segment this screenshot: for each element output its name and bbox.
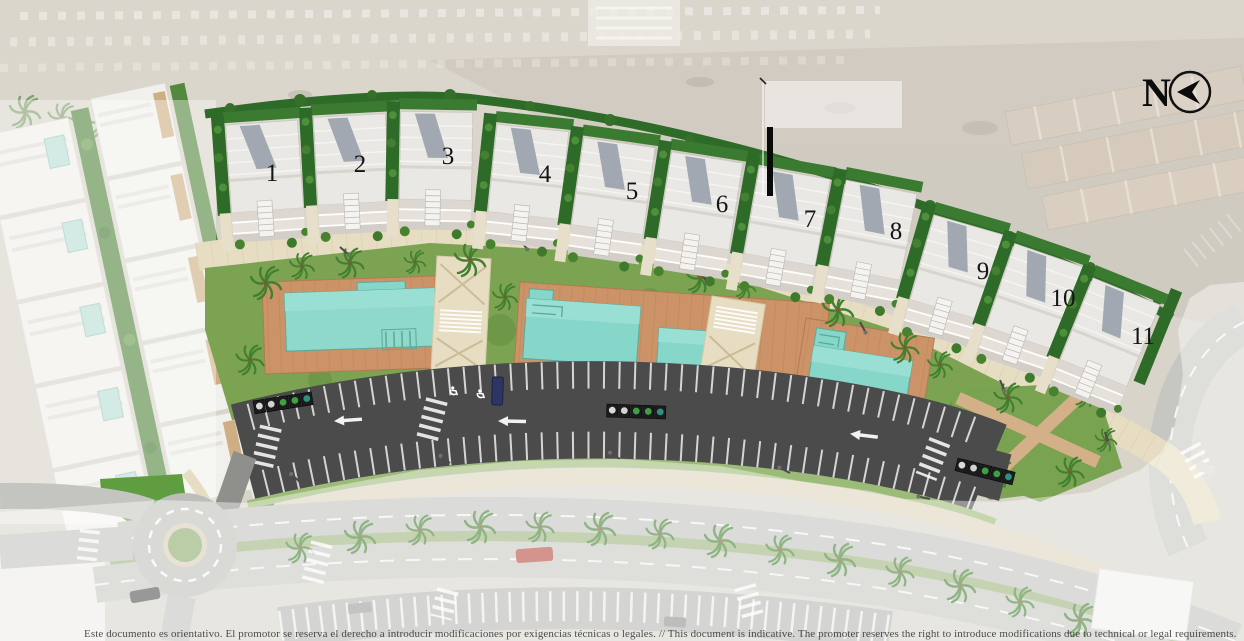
waste-containers [607,404,666,419]
disclaimer-text: Este documento es orientativo. El promot… [84,628,1234,639]
house-number-label: 7 [804,206,817,233]
house-number-label: 4 [539,161,552,188]
house-number-label: 6 [716,191,729,218]
house-number-label: 5 [626,178,639,205]
site-plan: 1 2 3 4 5 6 7 8 9 10 11 [0,0,1244,641]
house-plot [385,98,477,240]
site-plan-rendering: 1 2 3 4 5 6 7 8 9 10 11 [0,0,1244,641]
parked-car [492,377,504,405]
house-plot [299,100,396,245]
left-fade-overlay [0,100,216,524]
house-number-label: 8 [890,218,903,245]
north-label: N [1142,70,1171,115]
house-number-label: 10 [1051,285,1076,312]
house-plot [211,107,311,253]
stairs-path-1 [431,256,491,373]
house-number-label: 3 [442,143,455,170]
house-number-label: 1 [266,160,279,187]
house-number-label: 2 [354,151,367,178]
house-number-label: 11 [1131,323,1155,350]
annotation-highlight [765,81,902,128]
annotation-bar [767,127,773,196]
house-number-label: 9 [977,258,990,285]
